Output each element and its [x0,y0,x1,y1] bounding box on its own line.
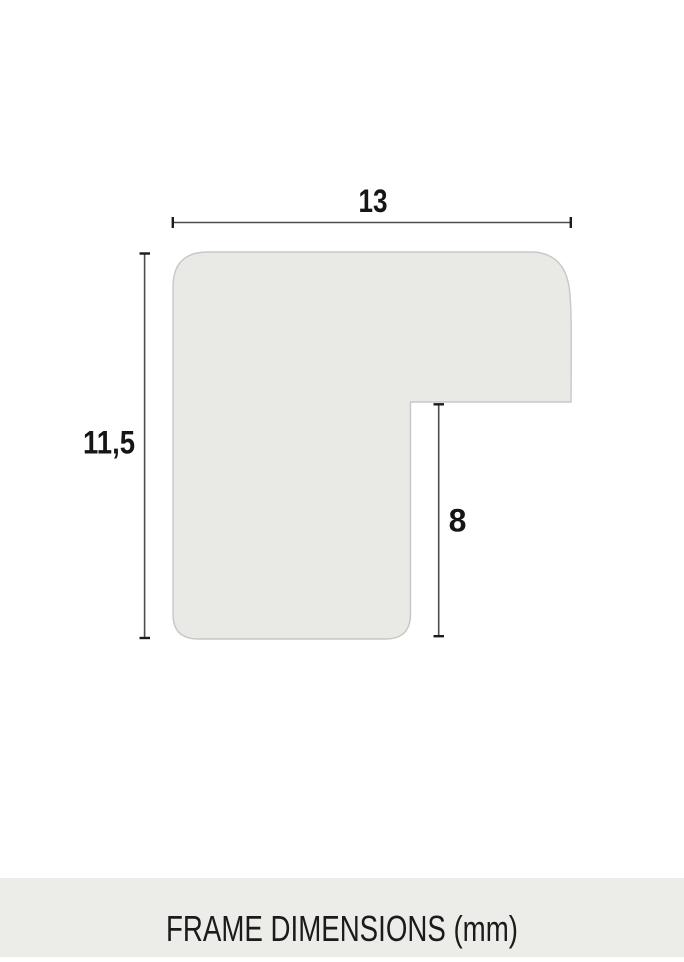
svg-text:13: 13 [359,183,388,219]
svg-text:8: 8 [449,503,467,539]
svg-text:FRAME DIMENSIONS (mm): FRAME DIMENSIONS (mm) [166,908,518,949]
svg-text:11,5: 11,5 [83,425,135,461]
